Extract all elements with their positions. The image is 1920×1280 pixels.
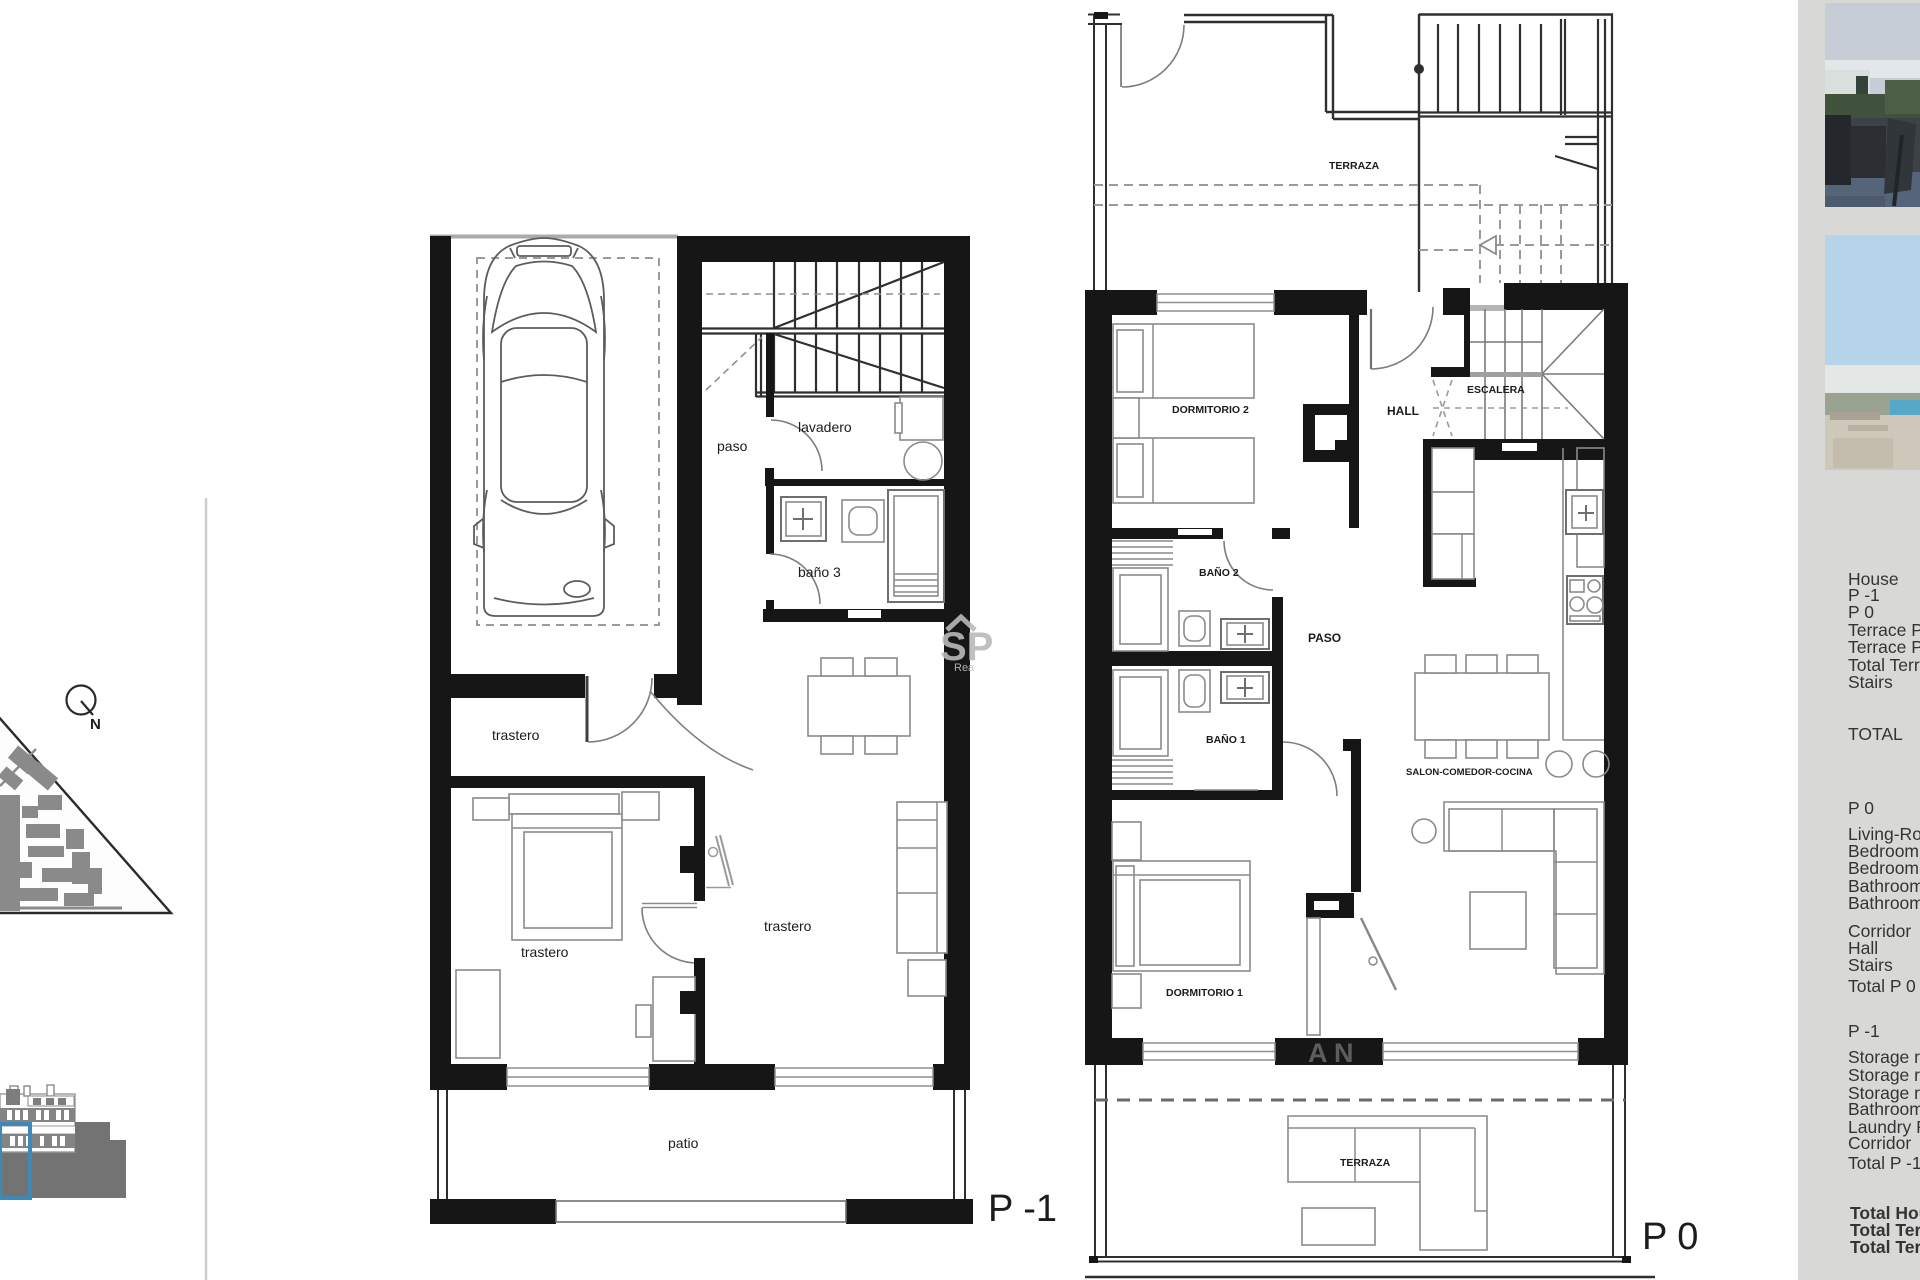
svg-text:Stairs: Stairs: [1848, 672, 1893, 692]
svg-text:Total P -1: Total P -1: [1848, 1153, 1920, 1173]
svg-text:Total Terrace: Total Terrace: [1850, 1237, 1920, 1257]
svg-text:patio: patio: [668, 1135, 699, 1151]
svg-text:BAÑO 1: BAÑO 1: [1206, 733, 1246, 746]
svg-text:P 0: P 0: [1848, 798, 1874, 818]
svg-text:Storage room 2: Storage room 2: [1848, 1065, 1920, 1085]
svg-text:P -1: P -1: [1848, 1021, 1880, 1041]
svg-text:Total P 0: Total P 0: [1848, 976, 1916, 996]
svg-text:Terrace P 0: Terrace P 0: [1848, 637, 1920, 657]
svg-text:BAÑO 2: BAÑO 2: [1199, 566, 1239, 579]
svg-text:SALON-COMEDOR-COCINA: SALON-COMEDOR-COCINA: [1406, 767, 1533, 778]
svg-text:TERRAZA: TERRAZA: [1340, 1157, 1391, 1169]
svg-text:DORMITORIO 2: DORMITORIO 2: [1172, 404, 1249, 416]
svg-text:baño 3: baño 3: [798, 564, 841, 580]
svg-text:trastero: trastero: [492, 727, 540, 743]
svg-text:TOTAL: TOTAL: [1848, 724, 1903, 744]
svg-text:Bedroom 2: Bedroom 2: [1848, 858, 1920, 878]
svg-text:P 0: P 0: [1642, 1216, 1698, 1258]
svg-text:PASO: PASO: [1308, 631, 1341, 645]
svg-text:N: N: [90, 716, 101, 733]
svg-text:trastero: trastero: [521, 944, 569, 960]
svg-text:P -1: P -1: [988, 1188, 1057, 1230]
svg-text:Corridor: Corridor: [1848, 1133, 1911, 1153]
svg-text:HALL: HALL: [1387, 404, 1419, 418]
svg-text:TERRAZA: TERRAZA: [1329, 160, 1380, 172]
svg-text:Stairs: Stairs: [1848, 955, 1893, 975]
svg-text:ESCALERA: ESCALERA: [1467, 384, 1525, 396]
svg-text:A N: A N: [1308, 1038, 1354, 1068]
svg-text:Rea: Rea: [954, 662, 975, 674]
svg-text:trastero: trastero: [764, 918, 812, 934]
svg-text:P 0: P 0: [1848, 602, 1874, 622]
svg-text:DORMITORIO 1: DORMITORIO 1: [1166, 987, 1243, 999]
svg-text:paso: paso: [717, 438, 748, 454]
svg-text:Bathroom 3: Bathroom 3: [1848, 1099, 1920, 1119]
svg-text:Bathroom 2: Bathroom 2: [1848, 893, 1920, 913]
svg-text:lavadero: lavadero: [798, 419, 852, 435]
svg-text:Storage room 1: Storage room 1: [1848, 1047, 1920, 1067]
